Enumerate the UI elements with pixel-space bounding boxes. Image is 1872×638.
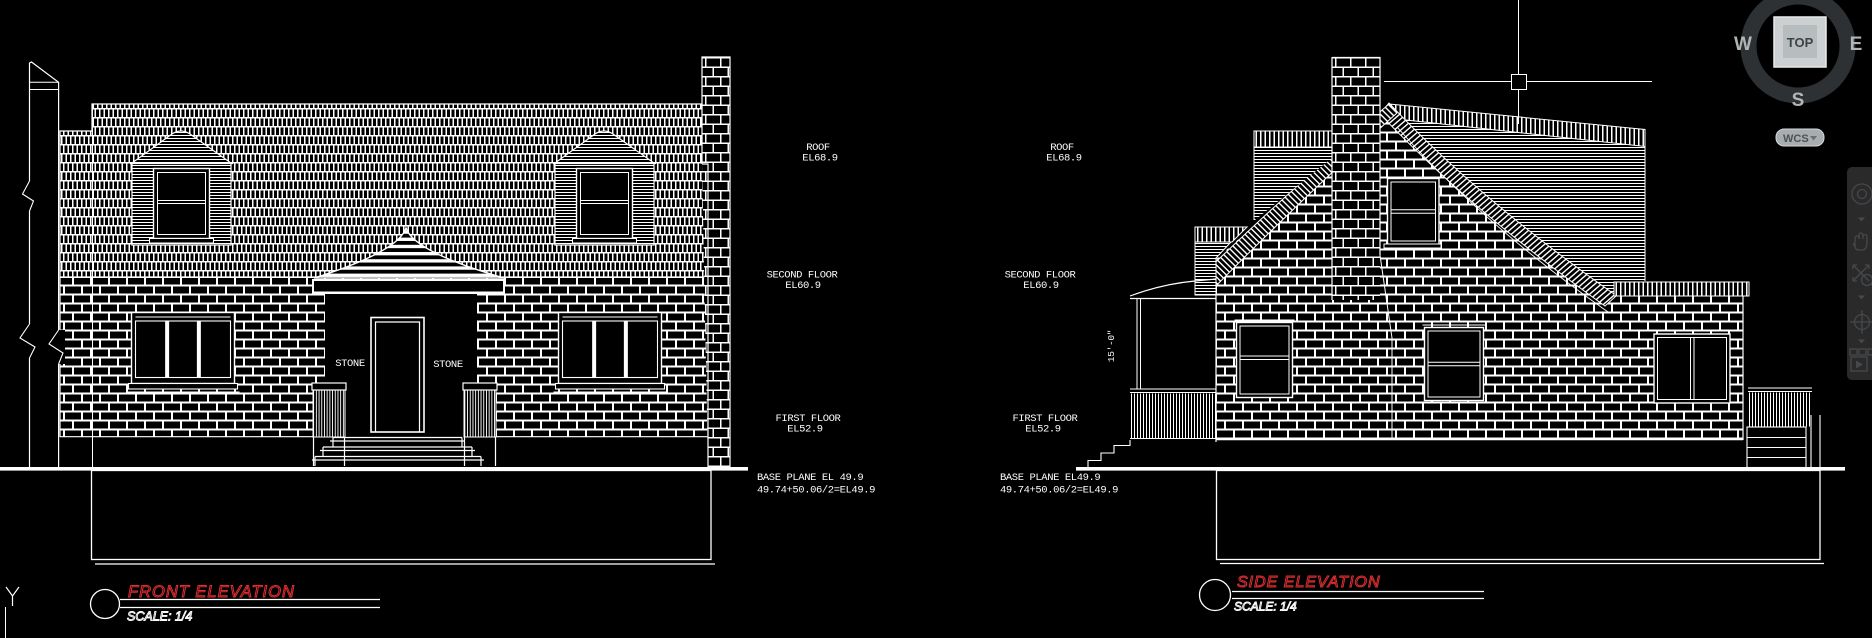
svg-text:SCALE: 1/4: SCALE: 1/4 xyxy=(1234,600,1297,614)
svg-text:BASE PLANE EL49.9: BASE PLANE EL49.9 xyxy=(1000,472,1100,484)
svg-text:BASE PLANE EL 49.9: BASE PLANE EL 49.9 xyxy=(757,472,863,484)
svg-text:STONE: STONE xyxy=(433,359,463,371)
svg-text:49.74+50.06/2=EL49.9: 49.74+50.06/2=EL49.9 xyxy=(1000,485,1118,497)
svg-text:SIDE ELEVATION: SIDE ELEVATION xyxy=(1237,574,1381,591)
svg-text:EL68.9: EL68.9 xyxy=(802,153,838,165)
svg-text:EL52.9: EL52.9 xyxy=(787,424,823,436)
svg-text:EL60.9: EL60.9 xyxy=(1023,280,1059,292)
svg-text:EL60.9: EL60.9 xyxy=(785,280,821,292)
svg-text:EL52.9: EL52.9 xyxy=(1025,424,1061,436)
svg-text:49.74+50.06/2=EL49.9: 49.74+50.06/2=EL49.9 xyxy=(757,485,875,497)
svg-text:WCS: WCS xyxy=(1783,133,1809,145)
svg-text:W: W xyxy=(1734,34,1752,55)
svg-text:TOP: TOP xyxy=(1787,35,1814,50)
svg-text:15'-0": 15'-0" xyxy=(1106,330,1117,362)
svg-text:S: S xyxy=(1792,90,1805,111)
svg-text:E: E xyxy=(1850,34,1863,55)
svg-text:SCALE: 1/4: SCALE: 1/4 xyxy=(127,610,192,624)
svg-text:FRONT ELEVATION: FRONT ELEVATION xyxy=(128,583,295,601)
svg-text:EL68.9: EL68.9 xyxy=(1046,153,1082,165)
svg-text:STONE: STONE xyxy=(335,358,365,370)
